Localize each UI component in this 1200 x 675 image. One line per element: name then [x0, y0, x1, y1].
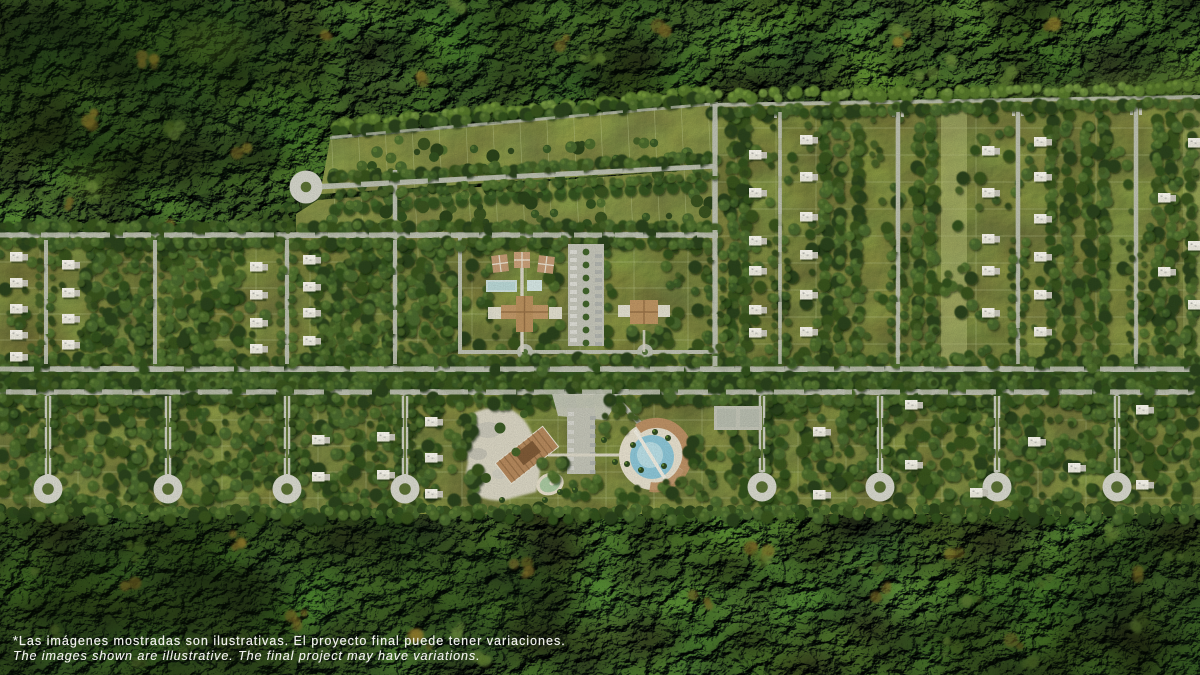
svg-text:*Las imágenes mostradas son il: *Las imágenes mostradas son ilustrativas…	[13, 634, 566, 648]
svg-text:The images shown are illustrat: The images shown are illustrative. The f…	[13, 649, 480, 663]
